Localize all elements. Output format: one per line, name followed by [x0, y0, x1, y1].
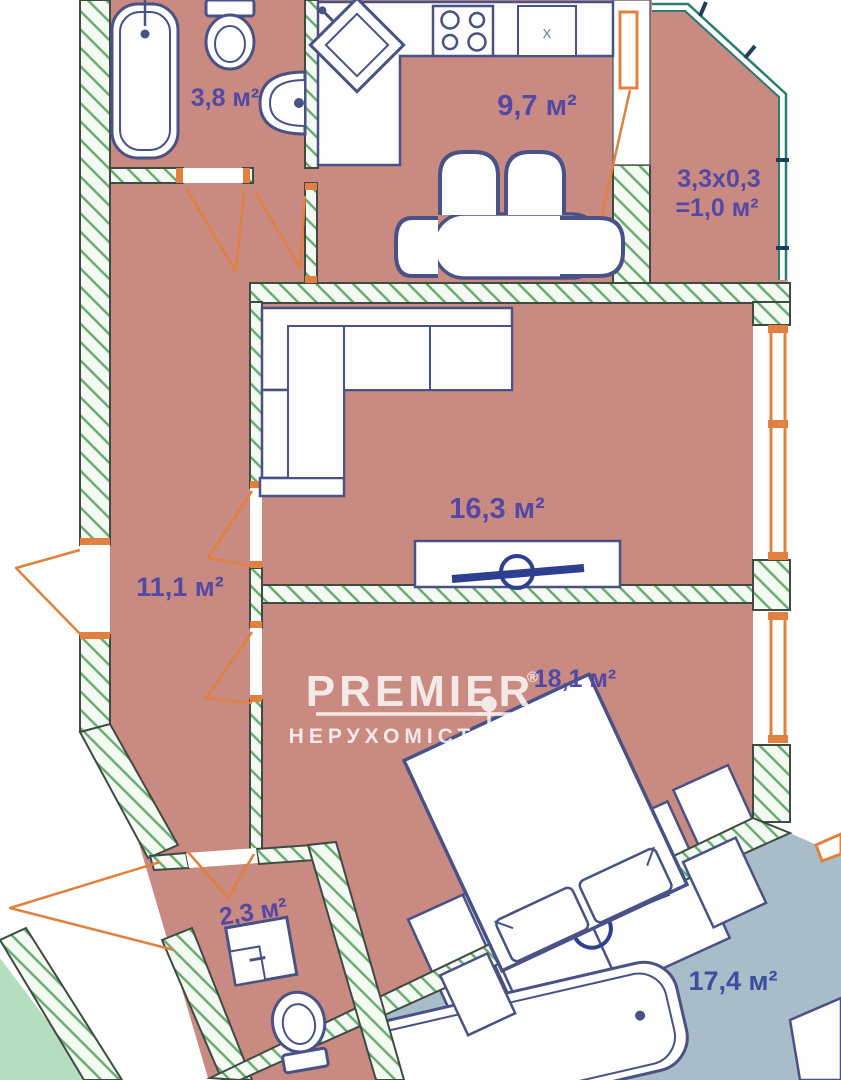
- wall-hall-living-a: [250, 302, 262, 488]
- watermark-subtitle: НЕРУХОМІСТЬ: [289, 725, 496, 748]
- wall-wc-top-right: [256, 845, 315, 864]
- watermark-registered-icon: ®: [527, 669, 538, 686]
- wall-right-a: [753, 302, 790, 325]
- wall-right-corner: [753, 745, 790, 822]
- wall-bathroom-bottom-left: [110, 168, 183, 183]
- entry-door-swing-icon: [16, 550, 84, 638]
- chair-icon: [440, 152, 498, 215]
- balcony-dimensions-label: 3,3x0,3: [677, 165, 760, 193]
- wall-bathroom-right: [305, 0, 318, 168]
- wall-hall-kitchen: [305, 183, 317, 283]
- wall-right-b: [753, 560, 790, 610]
- kitchen-area-label: 9,7 м²: [497, 90, 577, 122]
- wall-wc-top-left: [150, 853, 189, 870]
- balcony-door-leaf-icon: [620, 12, 637, 88]
- kitchen-sink-unit-icon: x: [518, 6, 576, 56]
- bedroom-area-label: 18,1 м²: [534, 665, 616, 693]
- bedroom-window-icon: [768, 612, 788, 743]
- watermark-brand: PREMIER: [306, 667, 534, 716]
- floor-plan-canvas: x: [0, 0, 841, 1080]
- wall-left-upper: [80, 0, 110, 545]
- wall-hall-living-c: [250, 700, 262, 862]
- tv-stand: [415, 541, 620, 588]
- bathroom-area-label: 3,8 м²: [191, 84, 260, 112]
- living-room-area-label: 16,3 м²: [449, 493, 545, 525]
- neighbor-window: [816, 834, 841, 861]
- floor-plan: x: [0, 0, 841, 1080]
- sink-unit-mark: x: [543, 23, 552, 42]
- wall-left-mid: [80, 635, 110, 732]
- neighbor-area-label: 17,4 м²: [688, 966, 777, 996]
- chair-icon: [560, 218, 623, 276]
- living-room-window-icon: [768, 325, 788, 560]
- chair-icon: [396, 218, 438, 276]
- wall-kitchen-bottom: [250, 283, 790, 303]
- stove-icon: [433, 6, 493, 56]
- chair-icon: [506, 152, 564, 215]
- hallway-area-label: 11,1 м²: [136, 572, 224, 602]
- toilet-icon: [206, 0, 254, 69]
- bathtub-icon: [112, 0, 178, 158]
- balcony-area-label: =1,0 м²: [675, 194, 758, 222]
- wall-hall-living-b: [250, 568, 262, 628]
